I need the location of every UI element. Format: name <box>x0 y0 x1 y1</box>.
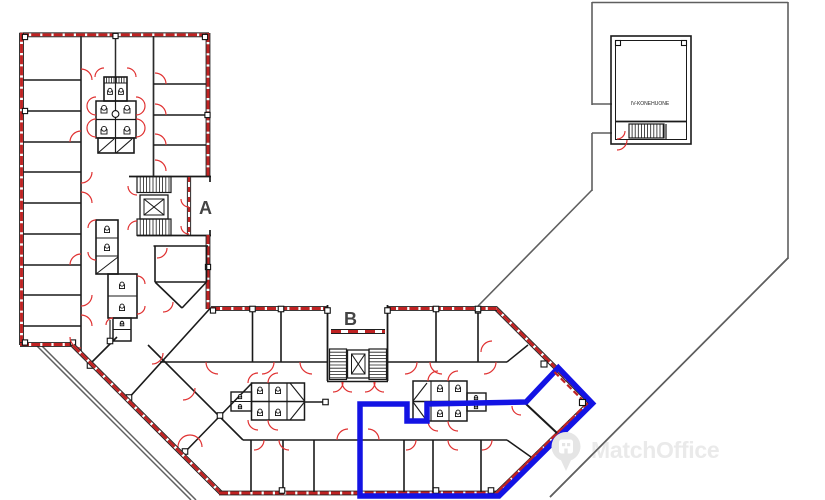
svg-text:IV-KONEHUONE: IV-KONEHUONE <box>631 101 670 107</box>
svg-text:B: B <box>344 309 357 329</box>
svg-text:MatchOffice: MatchOffice <box>591 437 719 463</box>
svg-text:A: A <box>199 198 212 218</box>
